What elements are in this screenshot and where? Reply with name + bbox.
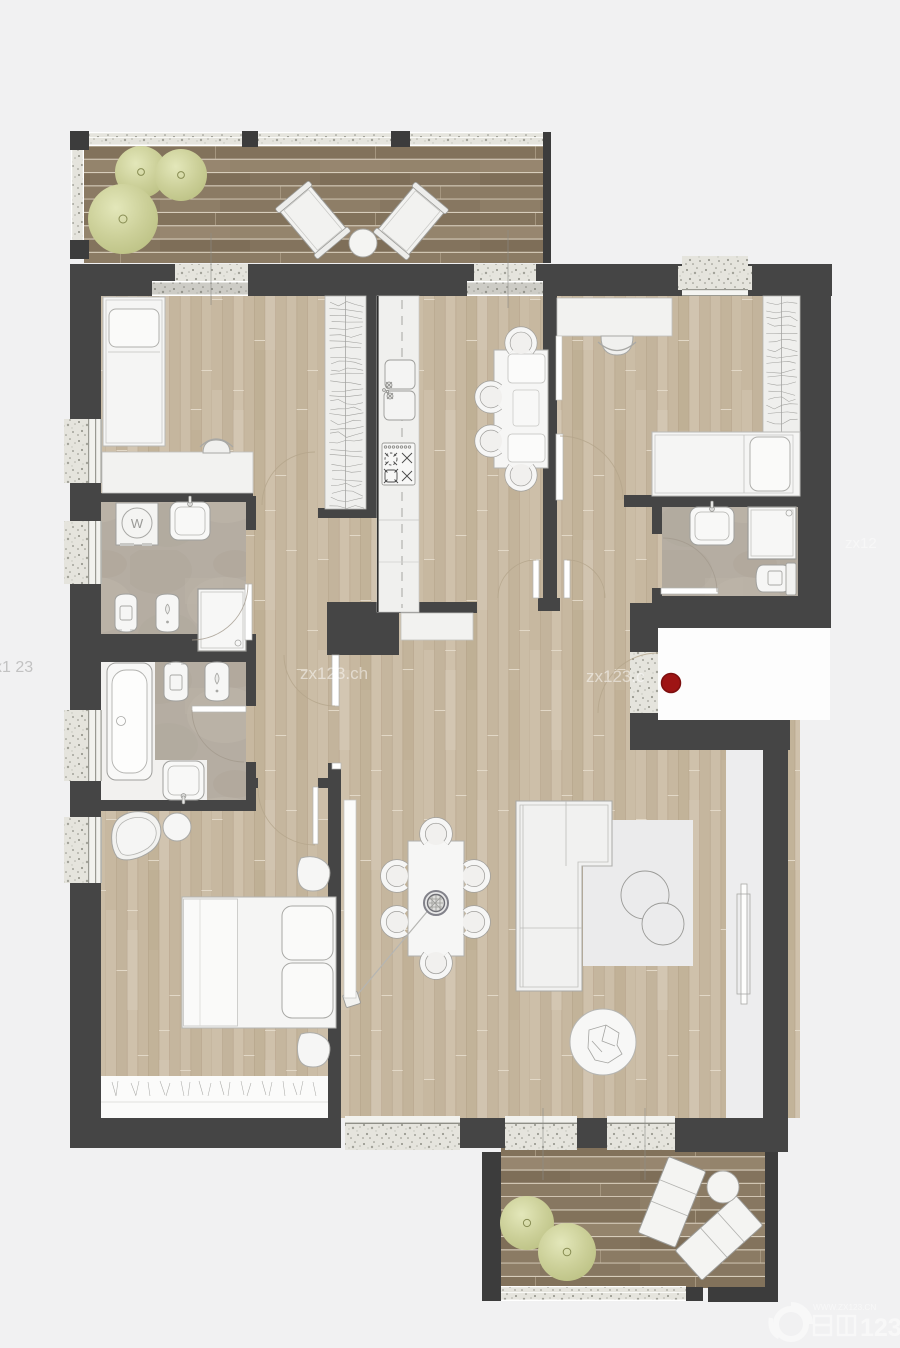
- svg-text:123: 123: [860, 1314, 900, 1342]
- svg-text:zx12: zx12: [845, 535, 877, 552]
- svg-text:zx1 23: zx1 23: [0, 659, 33, 676]
- svg-text:zx123.ch: zx123.ch: [300, 664, 368, 683]
- svg-text:zx123.c: zx123.c: [586, 667, 645, 686]
- svg-text:WWW.ZX123.CN: WWW.ZX123.CN: [813, 1303, 876, 1312]
- svg-text:W: W: [131, 516, 144, 531]
